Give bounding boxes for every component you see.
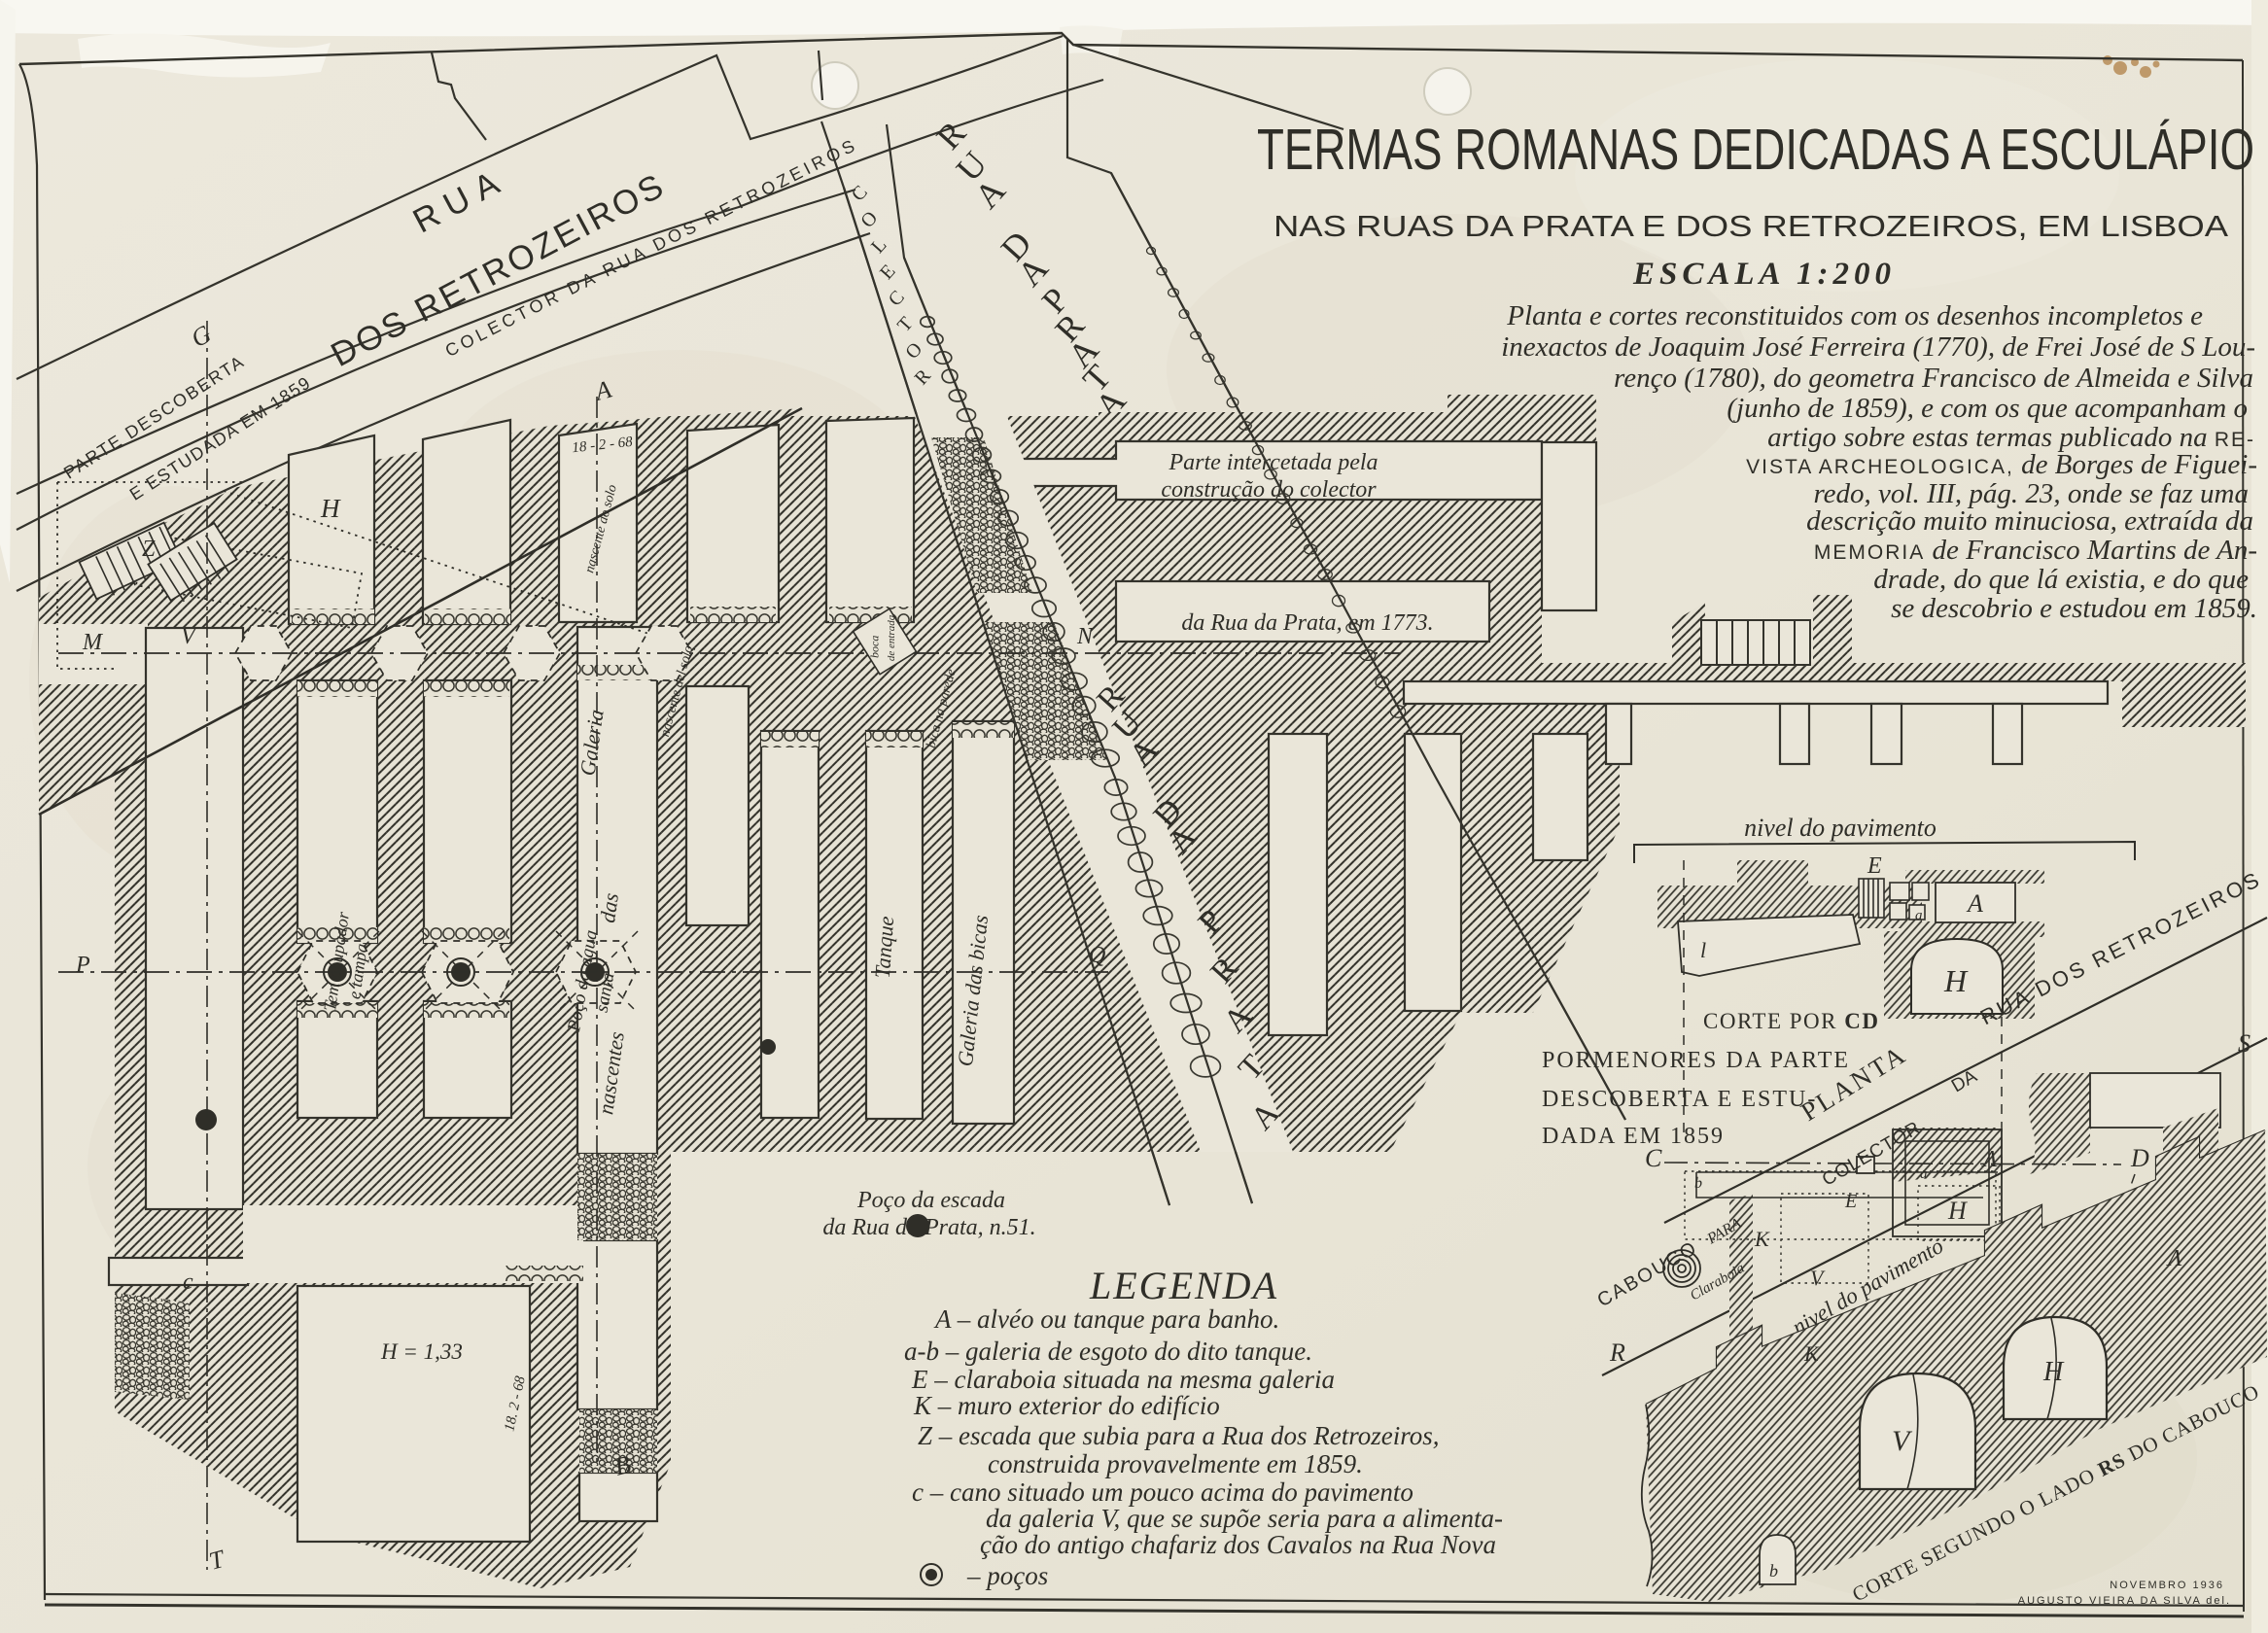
svg-text:da galeria V, que se supõe ser: da galeria V, que se supõe seria para a … xyxy=(986,1504,1503,1533)
svg-text:c: c xyxy=(183,1269,193,1295)
svg-text:l: l xyxy=(1700,938,1706,962)
svg-text:N: N xyxy=(1076,624,1095,649)
svg-text:a: a xyxy=(1920,1166,1928,1182)
svg-text:Planta e cortes reconstituidos: Planta e cortes reconstituidos com os de… xyxy=(1506,300,2203,331)
svg-text:K: K xyxy=(1803,1341,1820,1366)
svg-text:das: das xyxy=(595,891,623,924)
svg-text:Z – escada que subia para a Ru: Z – escada que subia para a Rua dos Retr… xyxy=(918,1421,1439,1450)
svg-text:ESCALA 1:200: ESCALA 1:200 xyxy=(1632,257,1896,292)
svg-text:D: D xyxy=(2130,1144,2149,1172)
svg-text:A: A xyxy=(1966,889,1983,918)
svg-text:NOVEMBRO 1936: NOVEMBRO 1936 xyxy=(2110,1580,2224,1591)
svg-text:V: V xyxy=(181,624,197,649)
svg-text:H: H xyxy=(320,494,341,523)
svg-text:E: E xyxy=(1867,853,1882,879)
svg-text:da Rua da Prata, n.51.: da Rua da Prata, n.51. xyxy=(822,1215,1035,1240)
svg-text:se descobrio e estudou em 1859: se descobrio e estudou em 1859. xyxy=(1891,593,2257,624)
svg-text:c – cano situado um pouco acim: c – cano situado um pouco acima do pavim… xyxy=(912,1477,1413,1507)
svg-text:drade, do que lá existia, e do: drade, do que lá existia, e do que xyxy=(1873,564,2249,595)
svg-text:R: R xyxy=(1609,1338,1625,1367)
svg-text:A – alvéo ou tanque para banho: A – alvéo ou tanque para banho. xyxy=(933,1304,1279,1334)
svg-text:construção do colector: construção do colector xyxy=(1161,477,1377,503)
svg-text:da Rua da Prata, em 1773.: da Rua da Prata, em 1773. xyxy=(1181,610,1433,636)
svg-text:descrição muito minuciosa, ext: descrição muito minuciosa, extraída da xyxy=(1806,505,2253,537)
svg-text:ção do antigo chafariz dos Cav: ção do antigo chafariz dos Cavalos na Ru… xyxy=(980,1530,1496,1559)
svg-text:P: P xyxy=(75,953,90,978)
svg-text:NAS RUAS DA PRATA E DOS RETROZ: NAS RUAS DA PRATA E DOS RETROZEIROS, EM … xyxy=(1274,209,2228,243)
svg-text:nivel do pavimento: nivel do pavimento xyxy=(1744,814,1937,842)
svg-text:H: H xyxy=(1947,1197,1968,1225)
svg-text:S: S xyxy=(2238,1029,2251,1058)
svg-text:K – muro exterior do edifício: K – muro exterior do edifício xyxy=(913,1391,1220,1420)
svg-text:boca: boca xyxy=(868,636,882,658)
svg-text:construida provavelmente em 18: construida provavelmente em 1859. xyxy=(988,1449,1363,1478)
svg-text:– poços: – poços xyxy=(966,1561,1048,1590)
svg-text:LEGENDA: LEGENDA xyxy=(1089,1264,1278,1307)
svg-text:Poço da escada: Poço da escada xyxy=(856,1188,1005,1213)
svg-text:DESCOBERTA E ESTU-: DESCOBERTA E ESTU- xyxy=(1542,1087,1817,1112)
svg-text:DADA EM 1859: DADA EM 1859 xyxy=(1542,1124,1725,1149)
svg-text:H: H xyxy=(2042,1357,2065,1387)
svg-text:renço (1780), do geometra Fran: renço (1780), do geometra Francisco de A… xyxy=(1614,363,2253,394)
svg-text:b: b xyxy=(1769,1561,1778,1581)
svg-text:CORTE POR CD: CORTE POR CD xyxy=(1703,1009,1880,1033)
svg-text:b: b xyxy=(1694,1175,1702,1192)
svg-text:AUGUSTO VIEIRA DA SILVA del.: AUGUSTO VIEIRA DA SILVA del. xyxy=(2018,1595,2231,1607)
svg-text:(junho de 1859), e com os que: (junho de 1859), e com os que acompanham… xyxy=(1727,393,2248,424)
svg-text:TERMAS ROMANAS DEDICADAS A ESC: TERMAS ROMANAS DEDICADAS A ESCULÁPIO xyxy=(1257,118,2254,182)
svg-text:Parte intercetada pela: Parte intercetada pela xyxy=(1168,450,1378,475)
svg-text:de entrada: de entrada xyxy=(886,614,897,661)
svg-text:a-b – galeria de esgoto do dit: a-b – galeria de esgoto do dito tanque. xyxy=(904,1337,1312,1366)
svg-text:E – claraboia situada na mesma: E – claraboia situada na mesma galeria xyxy=(911,1365,1335,1394)
svg-text:Tanque: Tanque xyxy=(870,915,898,979)
svg-text:H = 1,33: H = 1,33 xyxy=(380,1339,463,1364)
svg-text:Λ: Λ xyxy=(1981,1147,1998,1172)
svg-text:C: C xyxy=(1645,1144,1662,1172)
svg-text:Z: Z xyxy=(142,537,156,562)
svg-text:a: a xyxy=(1915,908,1923,923)
svg-text:H: H xyxy=(1943,963,1969,998)
svg-text:inexactos de Joaquim José Ferr: inexactos de Joaquim José Ferreira (1770… xyxy=(1501,331,2255,363)
svg-text:PORMENORES DA PARTE: PORMENORES DA PARTE xyxy=(1542,1048,1850,1073)
svg-text:K: K xyxy=(1754,1227,1770,1251)
svg-text:Λ: Λ xyxy=(2166,1246,2182,1271)
svg-text:E: E xyxy=(1844,1191,1857,1212)
svg-text:M: M xyxy=(82,630,104,655)
